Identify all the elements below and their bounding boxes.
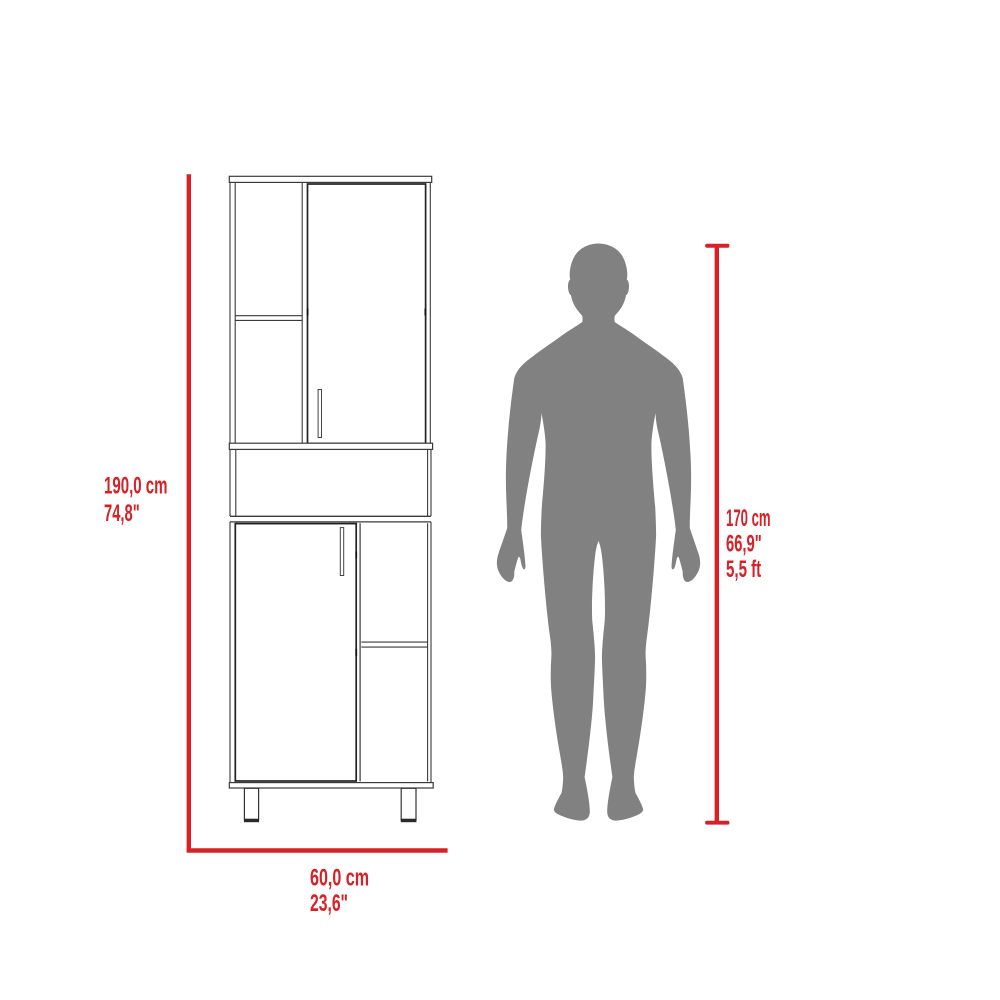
svg-text:170 cm: 170 cm — [726, 505, 771, 532]
svg-text:60,0 cm: 60,0 cm — [310, 864, 369, 891]
svg-text:66,9": 66,9" — [726, 530, 762, 557]
svg-text:190,0 cm: 190,0 cm — [104, 473, 168, 500]
svg-text:74,8": 74,8" — [104, 500, 140, 527]
svg-text:5,5 ft: 5,5 ft — [726, 556, 761, 583]
svg-text:23,6": 23,6" — [310, 890, 348, 917]
